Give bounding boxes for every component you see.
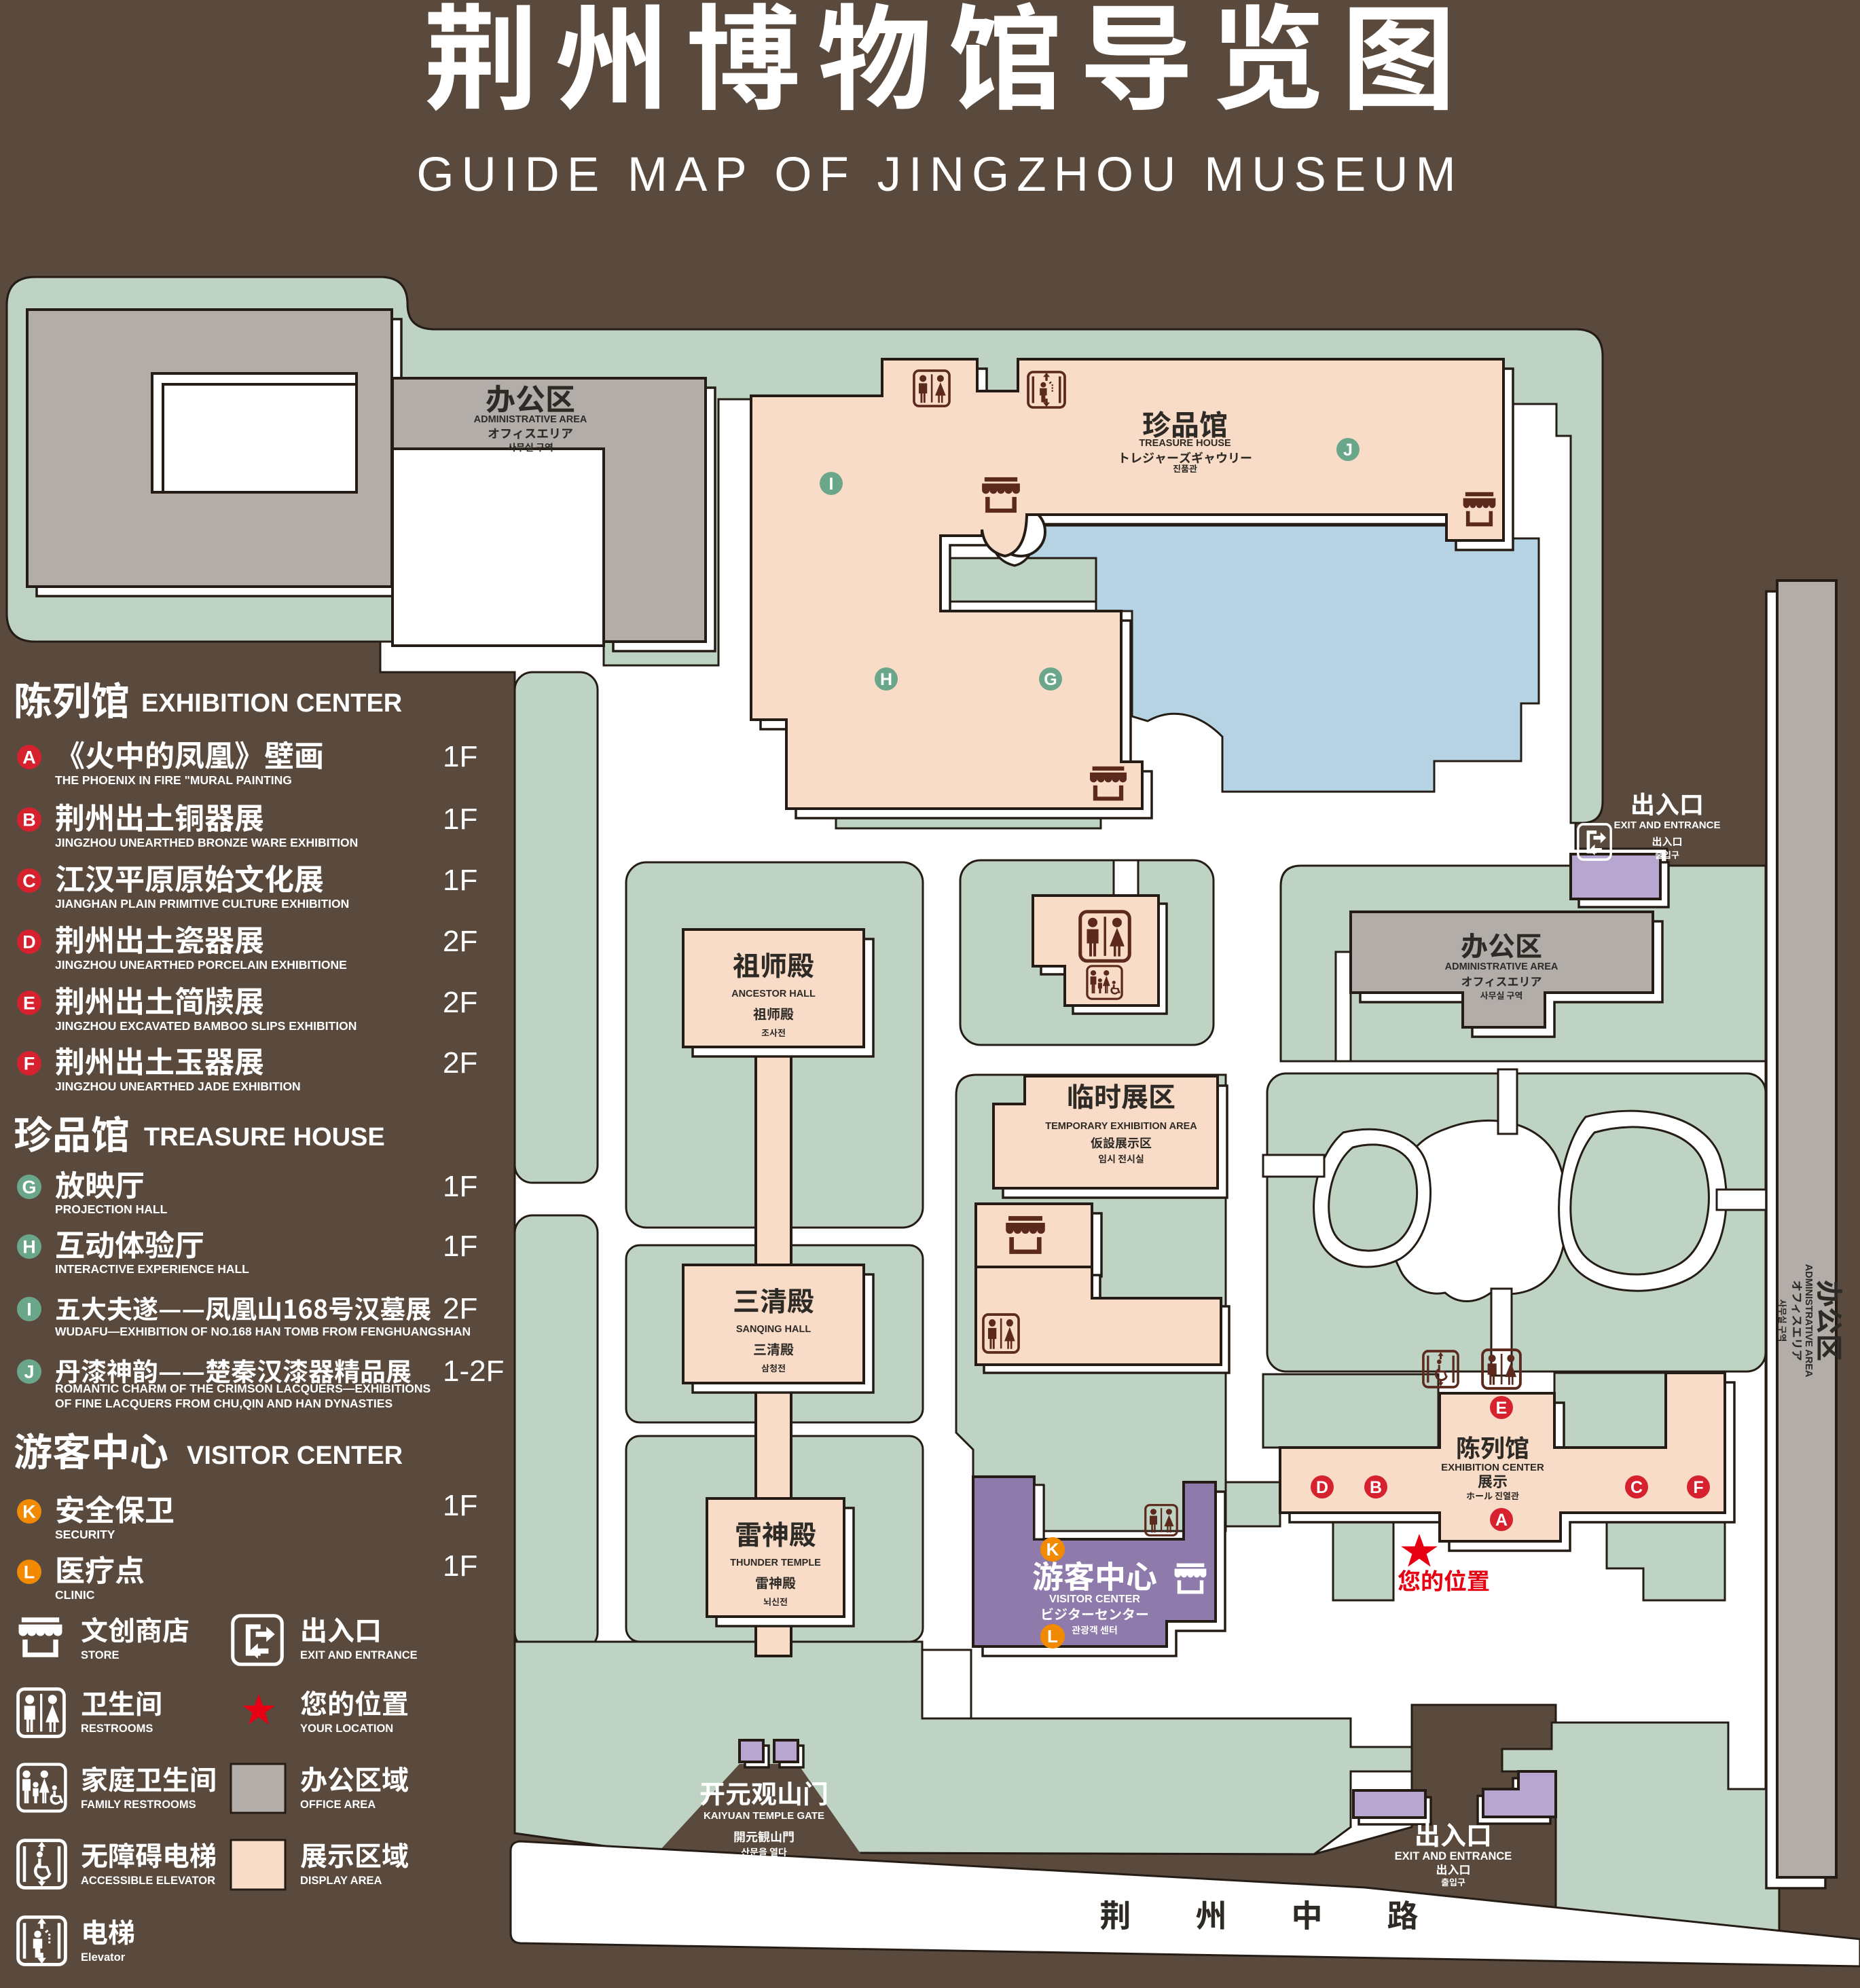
- svg-text:SECURITY: SECURITY: [55, 1528, 115, 1541]
- svg-text:H: H: [22, 1236, 36, 1257]
- svg-text:TEMPORARY EXHIBITION AREA: TEMPORARY EXHIBITION AREA: [1045, 1121, 1197, 1132]
- svg-text:D: D: [22, 932, 36, 952]
- svg-text:OFFICE AREA: OFFICE AREA: [300, 1799, 376, 1811]
- svg-text:1F: 1F: [443, 740, 477, 773]
- svg-text:1F: 1F: [443, 1230, 477, 1263]
- svg-text:DISPLAY AREA: DISPLAY AREA: [300, 1875, 382, 1887]
- svg-text:E: E: [1496, 1399, 1508, 1418]
- svg-text:EXIT AND ENTRANCE: EXIT AND ENTRANCE: [300, 1649, 418, 1661]
- svg-text:K: K: [1046, 1539, 1059, 1560]
- svg-text:JIANGHAN PLAIN PRIMITIVE CULTU: JIANGHAN PLAIN PRIMITIVE CULTURE EXHIBIT…: [55, 897, 349, 910]
- svg-text:1-2F: 1-2F: [443, 1355, 504, 1388]
- svg-text:YOUR LOCATION: YOUR LOCATION: [300, 1723, 393, 1735]
- svg-text:KAIYUAN TEMPLE GATE: KAIYUAN TEMPLE GATE: [704, 1810, 824, 1822]
- svg-text:TREASURE HOUSE: TREASURE HOUSE: [144, 1123, 385, 1152]
- svg-text:EXHIBITION CENTER: EXHIBITION CENTER: [141, 689, 402, 718]
- svg-text:VISITOR CENTER: VISITOR CENTER: [187, 1441, 403, 1470]
- svg-text:I: I: [26, 1299, 32, 1319]
- svg-text:A: A: [22, 747, 36, 767]
- svg-text:CLINIC: CLINIC: [55, 1588, 95, 1602]
- svg-text:THE PHOENIX IN FIRE "MURAL PAI: THE PHOENIX IN FIRE "MURAL PAINTING: [55, 773, 292, 787]
- svg-text:TREASURE HOUSE: TREASURE HOUSE: [1139, 438, 1231, 449]
- svg-text:2F: 2F: [443, 1292, 477, 1325]
- svg-text:J: J: [24, 1361, 34, 1382]
- svg-text:JINGZHOU UNEARTHED BRONZE WARE: JINGZHOU UNEARTHED BRONZE WARE EXHIBITIO…: [55, 836, 358, 849]
- svg-text:1F: 1F: [443, 803, 477, 836]
- svg-text:PROJECTION HALL: PROJECTION HALL: [55, 1202, 168, 1216]
- svg-text:ACCESSIBLE ELEVATOR: ACCESSIBLE ELEVATOR: [81, 1875, 215, 1887]
- svg-text:STORE: STORE: [81, 1649, 120, 1661]
- svg-text:1F: 1F: [443, 1170, 477, 1203]
- svg-text:2F: 2F: [443, 986, 477, 1019]
- svg-text:2F: 2F: [443, 1046, 477, 1080]
- svg-text:G: G: [22, 1177, 36, 1197]
- svg-text:ANCESTOR HALL: ANCESTOR HALL: [731, 989, 816, 999]
- svg-text:D: D: [1316, 1478, 1328, 1497]
- svg-text:JINGZHOU EXCAVATED BAMBOO SLIP: JINGZHOU EXCAVATED BAMBOO SLIPS EXHIBITI…: [55, 1019, 357, 1033]
- svg-text:A: A: [1495, 1511, 1508, 1530]
- svg-text:H: H: [880, 670, 892, 689]
- svg-text:1F: 1F: [443, 1549, 477, 1583]
- svg-text:F: F: [24, 1053, 35, 1073]
- svg-text:RESTROOMS: RESTROOMS: [81, 1723, 153, 1735]
- svg-text:I: I: [829, 475, 834, 494]
- svg-text:F: F: [1693, 1478, 1703, 1497]
- svg-text:EXIT AND ENTRANCE: EXIT AND ENTRANCE: [1614, 820, 1721, 831]
- svg-text:1F: 1F: [443, 864, 477, 897]
- svg-text:INTERACTIVE EXPERIENCE HALL: INTERACTIVE EXPERIENCE HALL: [55, 1262, 249, 1276]
- svg-text:C: C: [22, 870, 36, 891]
- svg-text:L: L: [1047, 1626, 1058, 1646]
- svg-text:B: B: [22, 809, 36, 830]
- svg-text:J: J: [1343, 441, 1353, 460]
- svg-text:C: C: [1630, 1478, 1643, 1497]
- svg-text:OF FINE LACQUERS FROM CHU,QIN: OF FINE LACQUERS FROM CHU,QIN AND HAN DY…: [55, 1397, 393, 1410]
- svg-text:WUDAFU—EXHIBITION OF NO.168 HA: WUDAFU—EXHIBITION OF NO.168 HAN TOMB FRO…: [55, 1325, 471, 1338]
- svg-text:K: K: [22, 1501, 36, 1522]
- svg-text:FAMILY RESTROOMS: FAMILY RESTROOMS: [81, 1799, 196, 1811]
- svg-text:JINGZHOU UNEARTHED JADE EXHIBI: JINGZHOU UNEARTHED JADE EXHIBITION: [55, 1080, 301, 1093]
- svg-text:ADMINISTRATIVE AREA: ADMINISTRATIVE AREA: [1803, 1264, 1814, 1378]
- svg-text:Elevator: Elevator: [81, 1951, 126, 1964]
- svg-text:ROMANTIC CHARM OF THE CRIMSON: ROMANTIC CHARM OF THE CRIMSON LACQUERS—E…: [55, 1382, 431, 1395]
- svg-text:G: G: [1044, 670, 1057, 689]
- svg-text:EXHIBITION CENTER: EXHIBITION CENTER: [1441, 1462, 1544, 1473]
- svg-text:THUNDER TEMPLE: THUNDER TEMPLE: [730, 1558, 821, 1568]
- svg-text:ADMINISTRATIVE AREA: ADMINISTRATIVE AREA: [1445, 961, 1558, 972]
- svg-text:ADMINISTRATIVE AREA: ADMINISTRATIVE AREA: [474, 414, 587, 425]
- svg-text:VISITOR CENTER: VISITOR CENTER: [1049, 1594, 1140, 1605]
- svg-text:E: E: [23, 993, 35, 1013]
- svg-text:B: B: [1370, 1478, 1382, 1497]
- svg-text:EXIT AND ENTRANCE: EXIT AND ENTRANCE: [1395, 1850, 1512, 1862]
- svg-text:GUIDE MAP OF JINGZHOU MUSEUM: GUIDE MAP OF JINGZHOU MUSEUM: [416, 148, 1463, 202]
- svg-text:SANQING HALL: SANQING HALL: [736, 1324, 812, 1335]
- svg-text:JINGZHOU UNEARTHED PORCELAIN E: JINGZHOU UNEARTHED PORCELAIN EXHIBITIONE: [55, 958, 347, 972]
- svg-text:1F: 1F: [443, 1489, 477, 1522]
- svg-text:2F: 2F: [443, 925, 477, 958]
- svg-text:L: L: [24, 1562, 35, 1582]
